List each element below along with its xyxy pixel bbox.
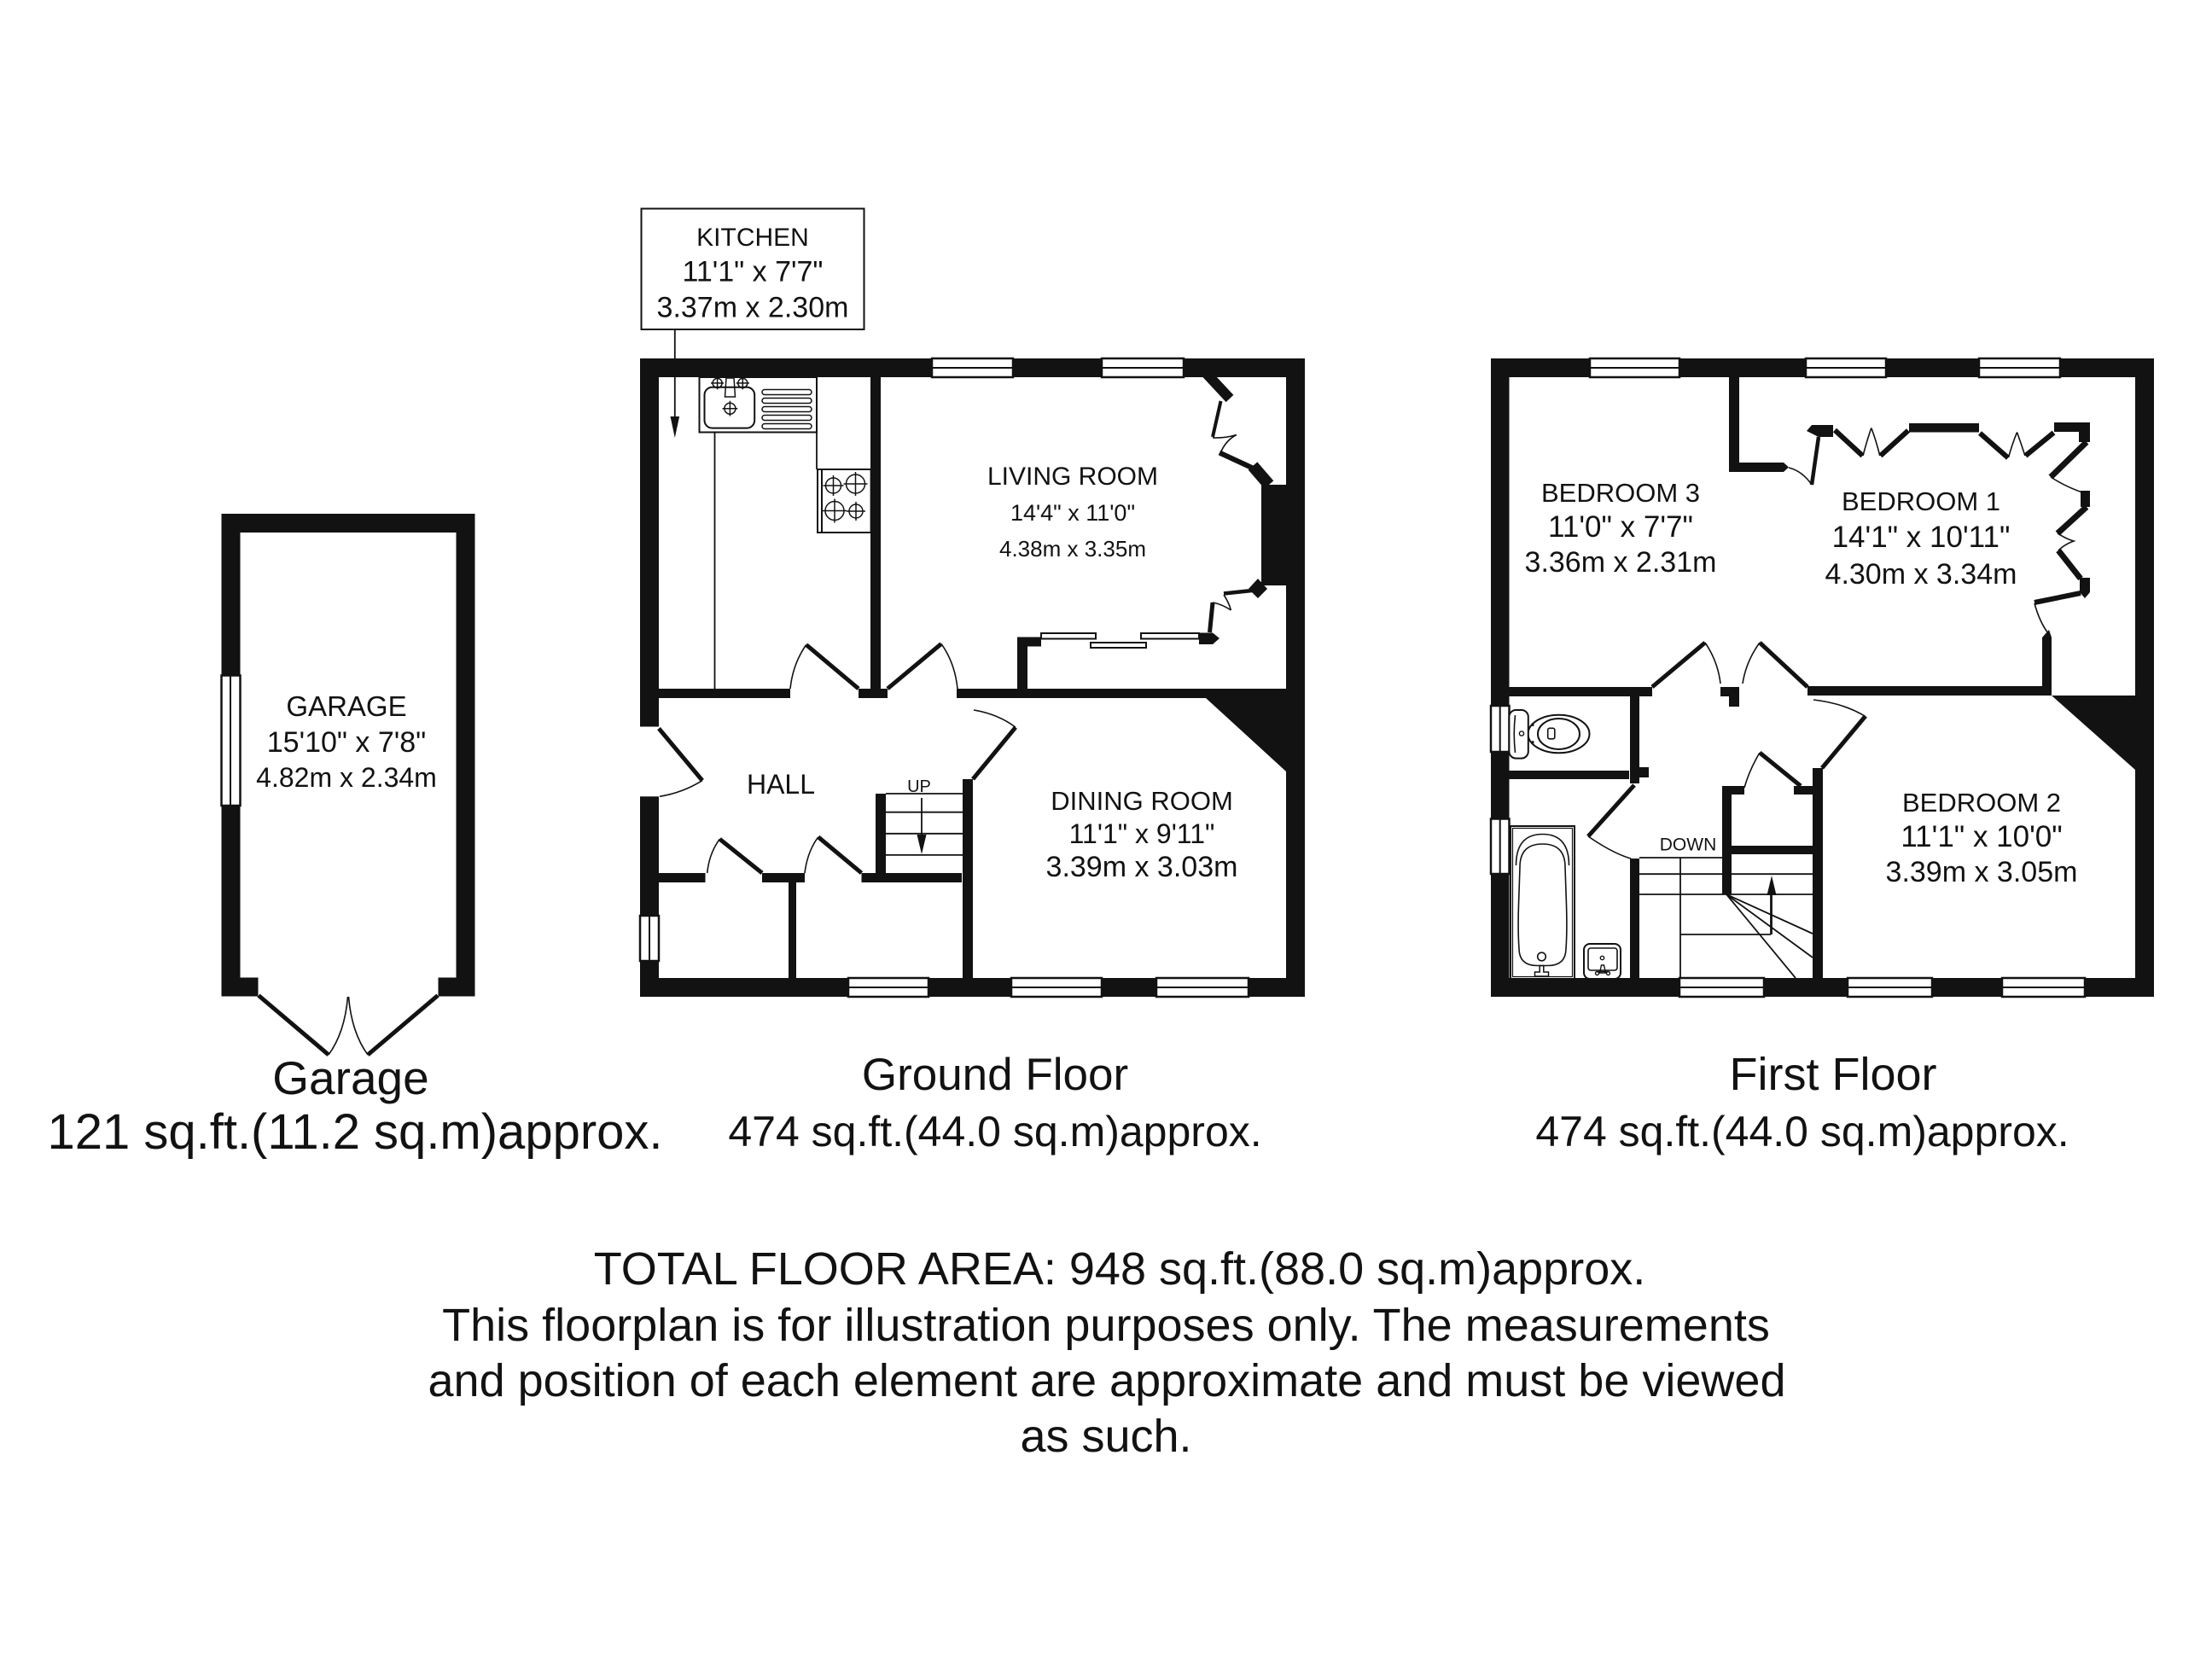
svg-text:First Floor: First Floor: [1730, 1049, 1937, 1100]
svg-text:as such.: as such.: [1020, 1411, 1191, 1462]
svg-text:11'0" x 7'7": 11'0" x 7'7": [1548, 510, 1693, 544]
svg-text:HALL: HALL: [747, 769, 815, 800]
svg-text:11'1" x 10'0": 11'1" x 10'0": [1901, 820, 2062, 853]
svg-text:3.36m x 2.31m: 3.36m x 2.31m: [1525, 546, 1717, 579]
svg-text:LIVING ROOM: LIVING ROOM: [987, 463, 1158, 491]
svg-text:4.38m x 3.35m: 4.38m x 3.35m: [999, 536, 1146, 562]
svg-text:3.37m x 2.30m: 3.37m x 2.30m: [657, 291, 849, 323]
svg-text:Ground Floor: Ground Floor: [862, 1050, 1128, 1100]
svg-text:This floorplan is for illustra: This floorplan is for illustration purpo…: [442, 1300, 1770, 1351]
svg-text:14'1" x 10'11": 14'1" x 10'11": [1832, 521, 2011, 554]
svg-text:14'4" x 11'0": 14'4" x 11'0": [1010, 500, 1135, 526]
svg-text:TOTAL FLOOR AREA: 948 sq.ft.(8: TOTAL FLOOR AREA: 948 sq.ft.(88.0 sq.m)a…: [594, 1243, 1645, 1295]
svg-text:DINING ROOM: DINING ROOM: [1051, 786, 1233, 816]
svg-text:GARAGE: GARAGE: [286, 690, 406, 722]
svg-text:3.39m x 3.05m: 3.39m x 3.05m: [1886, 856, 2078, 888]
svg-text:BEDROOM 2: BEDROOM 2: [1902, 788, 2061, 818]
svg-text:BEDROOM 3: BEDROOM 3: [1541, 478, 1700, 508]
svg-text:4.82m x 2.34m: 4.82m x 2.34m: [256, 762, 437, 793]
svg-text:and position of each element a: and position of each element are approxi…: [428, 1355, 1786, 1406]
svg-text:474 sq.ft.(44.0 sq.m)approx.: 474 sq.ft.(44.0 sq.m)approx.: [728, 1108, 1261, 1155]
svg-text:11'1" x 9'11": 11'1" x 9'11": [1069, 818, 1215, 849]
svg-text:11'1" x 7'7": 11'1" x 7'7": [682, 256, 823, 288]
svg-text:UP: UP: [907, 777, 931, 796]
svg-text:KITCHEN: KITCHEN: [696, 224, 809, 252]
svg-text:Garage: Garage: [272, 1051, 428, 1104]
svg-text:3.39m x 3.03m: 3.39m x 3.03m: [1046, 851, 1238, 883]
svg-text:4.30m x 3.34m: 4.30m x 3.34m: [1825, 558, 2017, 591]
svg-text:121 sq.ft.(11.2 sq.m)approx.: 121 sq.ft.(11.2 sq.m)approx.: [47, 1104, 662, 1160]
svg-text:474 sq.ft.(44.0 sq.m)approx.: 474 sq.ft.(44.0 sq.m)approx.: [1535, 1108, 2069, 1155]
svg-text:15'10" x 7'8": 15'10" x 7'8": [267, 726, 426, 759]
svg-text:BEDROOM 1: BEDROOM 1: [1842, 486, 2000, 516]
svg-text:DOWN: DOWN: [1660, 835, 1717, 855]
